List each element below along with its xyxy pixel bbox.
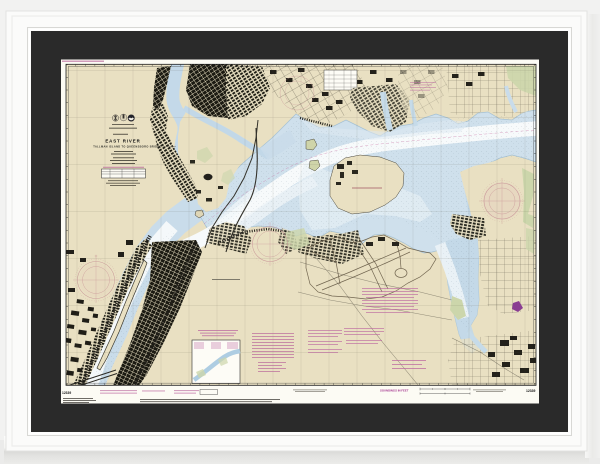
svg-text:TALLMAN ISLAND TO QUEENSBORO B: TALLMAN ISLAND TO QUEENSBORO BRIDGE	[93, 145, 161, 149]
svg-text:EAST RIVER: EAST RIVER	[105, 139, 140, 144]
svg-text:12339: 12339	[62, 391, 71, 395]
svg-text:SOUNDINGS IN FEET: SOUNDINGS IN FEET	[380, 389, 409, 393]
svg-text:12339: 12339	[526, 389, 536, 393]
